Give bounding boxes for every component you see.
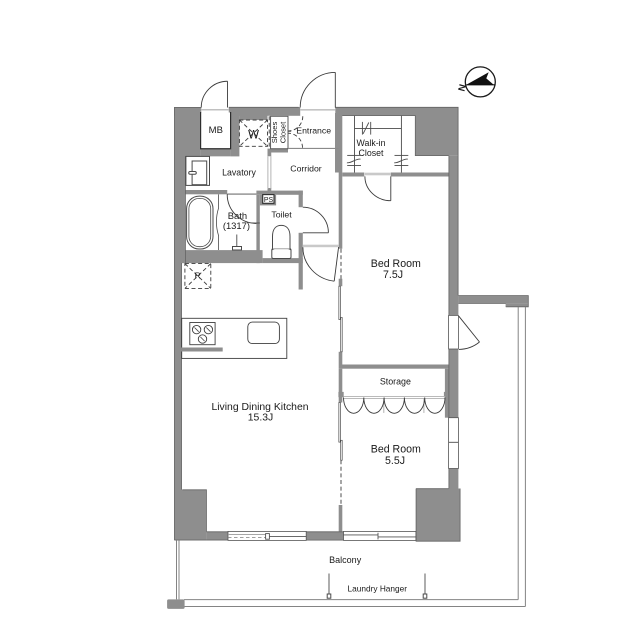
svg-text:Bed Room: Bed Room: [371, 444, 421, 456]
svg-text:5.5J: 5.5J: [385, 455, 405, 467]
svg-text:Toilet: Toilet: [271, 210, 292, 220]
svg-text:R: R: [195, 271, 201, 281]
svg-text:Bed Room: Bed Room: [371, 258, 421, 270]
svg-text:Laundry Hanger: Laundry Hanger: [348, 583, 408, 593]
svg-text:Walk-in: Walk-in: [357, 138, 386, 148]
svg-text:Closet: Closet: [278, 121, 287, 143]
svg-text:7.5J: 7.5J: [383, 269, 403, 281]
svg-text:Entrance: Entrance: [296, 126, 331, 136]
svg-text:Living Dining Kitchen: Living Dining Kitchen: [211, 402, 308, 413]
svg-text:15.3J: 15.3J: [248, 413, 273, 424]
svg-text:Closet: Closet: [359, 148, 384, 158]
svg-text:PS: PS: [264, 197, 274, 204]
svg-text:Lavatory: Lavatory: [222, 167, 256, 177]
svg-text:W: W: [248, 130, 259, 142]
svg-text:MB: MB: [209, 125, 223, 136]
svg-text:Corridor: Corridor: [290, 163, 321, 173]
svg-text:Storage: Storage: [380, 377, 411, 387]
svg-text:Balcony: Balcony: [329, 555, 362, 565]
